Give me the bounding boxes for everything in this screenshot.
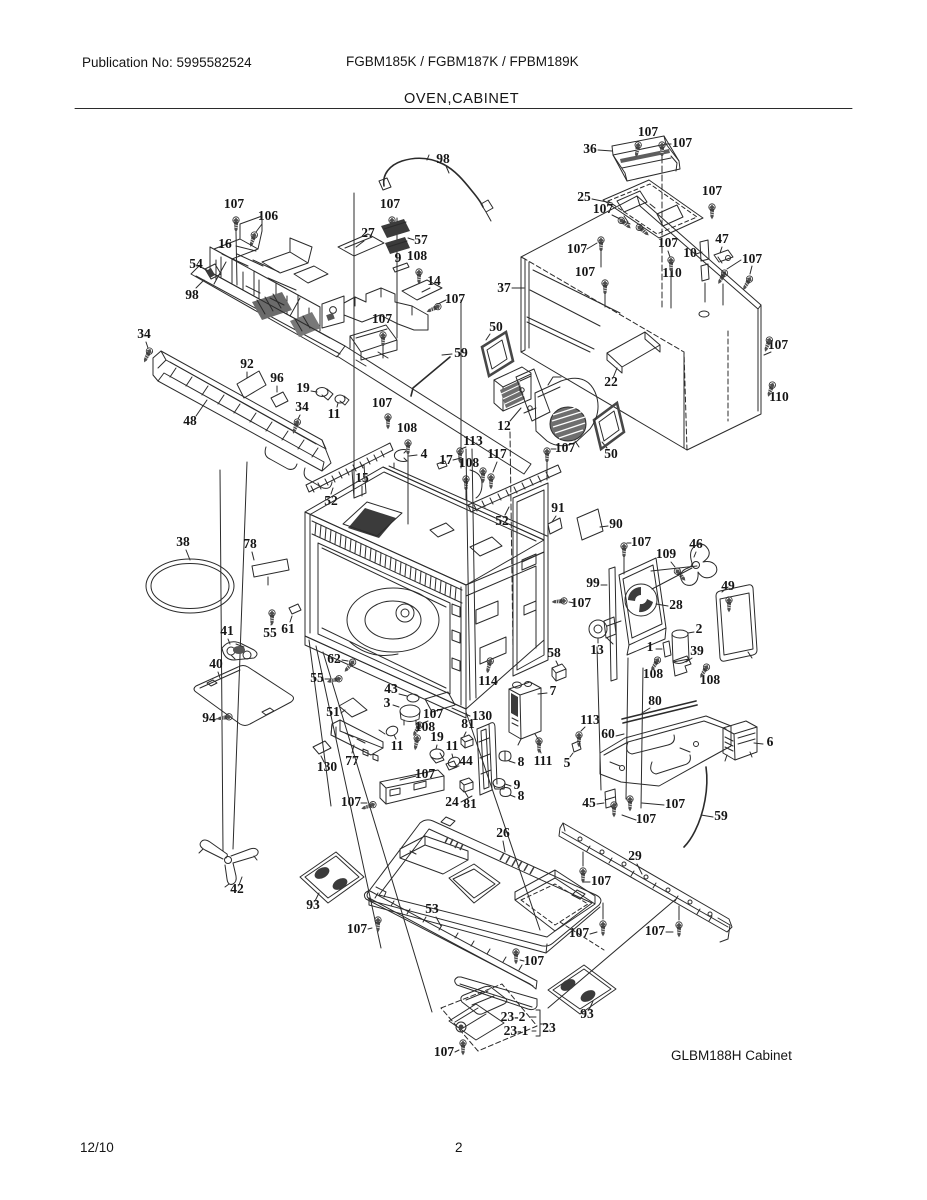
- svg-text:28: 28: [669, 597, 683, 612]
- svg-text:51: 51: [326, 704, 340, 719]
- svg-text:55: 55: [310, 670, 324, 685]
- svg-text:108: 108: [459, 455, 480, 470]
- svg-text:50: 50: [604, 446, 618, 461]
- svg-text:GLBM188H Cabinet: GLBM188H Cabinet: [671, 1048, 792, 1063]
- svg-text:60: 60: [601, 726, 615, 741]
- svg-text:98: 98: [185, 287, 199, 302]
- svg-text:107: 107: [636, 811, 657, 826]
- svg-text:47: 47: [715, 231, 729, 246]
- svg-text:9: 9: [395, 250, 402, 265]
- svg-text:23-1: 23-1: [504, 1023, 529, 1038]
- svg-text:22: 22: [604, 374, 618, 389]
- svg-text:23: 23: [542, 1020, 556, 1035]
- svg-text:43: 43: [384, 681, 398, 696]
- svg-text:109: 109: [656, 546, 677, 561]
- svg-text:107: 107: [631, 534, 652, 549]
- svg-text:26: 26: [496, 825, 510, 840]
- svg-text:24: 24: [445, 794, 459, 809]
- svg-text:111: 111: [534, 753, 553, 768]
- svg-text:107: 107: [524, 953, 545, 968]
- svg-text:90: 90: [609, 516, 623, 531]
- svg-text:57: 57: [414, 232, 428, 247]
- svg-text:107: 107: [341, 794, 362, 809]
- svg-text:38: 38: [176, 534, 190, 549]
- svg-text:107: 107: [445, 291, 466, 306]
- svg-text:55: 55: [263, 625, 277, 640]
- svg-text:117: 117: [487, 446, 507, 461]
- svg-text:6: 6: [767, 734, 774, 749]
- svg-text:93: 93: [580, 1006, 594, 1021]
- svg-text:113: 113: [580, 712, 600, 727]
- svg-text:107: 107: [434, 1044, 455, 1059]
- svg-text:130: 130: [317, 759, 338, 774]
- svg-text:42: 42: [230, 881, 244, 896]
- svg-text:62: 62: [327, 651, 341, 666]
- svg-text:12: 12: [497, 418, 511, 433]
- svg-text:29: 29: [628, 848, 642, 863]
- svg-text:107: 107: [665, 796, 686, 811]
- svg-text:107: 107: [224, 196, 245, 211]
- svg-text:40: 40: [209, 656, 223, 671]
- svg-text:OVEN,CABINET: OVEN,CABINET: [404, 91, 519, 107]
- svg-text:114: 114: [478, 673, 498, 688]
- svg-text:107: 107: [575, 264, 596, 279]
- svg-text:11: 11: [391, 738, 404, 753]
- svg-text:107: 107: [347, 921, 368, 936]
- svg-text:19: 19: [296, 380, 310, 395]
- svg-text:77: 77: [345, 753, 359, 768]
- svg-text:59: 59: [714, 808, 728, 823]
- svg-text:61: 61: [281, 621, 295, 636]
- svg-text:107: 107: [372, 311, 393, 326]
- svg-text:44: 44: [459, 753, 473, 768]
- svg-text:11: 11: [446, 738, 459, 753]
- svg-text:48: 48: [183, 413, 197, 428]
- svg-text:25: 25: [577, 189, 591, 204]
- svg-text:39: 39: [690, 643, 704, 658]
- svg-text:107: 107: [702, 183, 723, 198]
- svg-text:34: 34: [137, 326, 151, 341]
- svg-text:78: 78: [243, 536, 257, 551]
- svg-text:81: 81: [463, 796, 477, 811]
- svg-text:93: 93: [306, 897, 320, 912]
- svg-text:54: 54: [189, 256, 203, 271]
- svg-text:46: 46: [689, 536, 703, 551]
- svg-text:3: 3: [384, 695, 391, 710]
- svg-text:59: 59: [454, 345, 468, 360]
- svg-text:8: 8: [518, 788, 525, 803]
- svg-text:15: 15: [355, 470, 369, 485]
- svg-text:27: 27: [361, 225, 375, 240]
- svg-text:81: 81: [461, 716, 475, 731]
- svg-text:107: 107: [567, 241, 588, 256]
- svg-text:107: 107: [672, 135, 693, 150]
- svg-text:96: 96: [270, 370, 284, 385]
- svg-text:Publication No: 5995582524: Publication No: 5995582524: [82, 55, 252, 70]
- svg-text:FGBM185K / FGBM187K / FPBM189K: FGBM185K / FGBM187K / FPBM189K: [346, 54, 579, 69]
- svg-text:12/10: 12/10: [80, 1140, 114, 1155]
- svg-text:107: 107: [569, 925, 590, 940]
- svg-text:36: 36: [583, 141, 597, 156]
- svg-text:19: 19: [430, 729, 444, 744]
- svg-text:98: 98: [436, 151, 450, 166]
- svg-text:14: 14: [427, 273, 441, 288]
- svg-text:107: 107: [415, 766, 436, 781]
- svg-text:107: 107: [372, 395, 393, 410]
- svg-text:11: 11: [328, 406, 341, 421]
- svg-text:16: 16: [218, 236, 232, 251]
- svg-text:37: 37: [497, 280, 511, 295]
- svg-text:113: 113: [463, 433, 483, 448]
- svg-text:107: 107: [645, 923, 666, 938]
- svg-text:2: 2: [696, 621, 703, 636]
- svg-text:23-2: 23-2: [501, 1009, 526, 1024]
- svg-text:107: 107: [742, 251, 763, 266]
- svg-text:53: 53: [425, 901, 439, 916]
- svg-text:41: 41: [220, 623, 234, 638]
- svg-text:108: 108: [397, 420, 418, 435]
- svg-text:107: 107: [638, 124, 659, 139]
- svg-text:92: 92: [240, 356, 254, 371]
- svg-text:107: 107: [768, 337, 789, 352]
- svg-text:58: 58: [547, 645, 561, 660]
- svg-text:107: 107: [591, 873, 612, 888]
- svg-text:94: 94: [202, 710, 216, 725]
- svg-text:34: 34: [295, 399, 309, 414]
- svg-text:107: 107: [555, 440, 576, 455]
- svg-text:130: 130: [472, 708, 493, 723]
- svg-text:108: 108: [407, 248, 428, 263]
- svg-text:45: 45: [582, 795, 596, 810]
- svg-text:110: 110: [769, 389, 789, 404]
- svg-text:2: 2: [455, 1140, 463, 1155]
- svg-text:99: 99: [586, 575, 600, 590]
- svg-text:107: 107: [380, 196, 401, 211]
- svg-text:80: 80: [648, 693, 662, 708]
- svg-text:50: 50: [489, 319, 503, 334]
- svg-text:8: 8: [518, 754, 525, 769]
- svg-text:106: 106: [258, 208, 279, 223]
- svg-text:91: 91: [551, 500, 565, 515]
- svg-text:1: 1: [647, 639, 654, 654]
- svg-text:7: 7: [550, 683, 557, 698]
- svg-text:4: 4: [421, 446, 428, 461]
